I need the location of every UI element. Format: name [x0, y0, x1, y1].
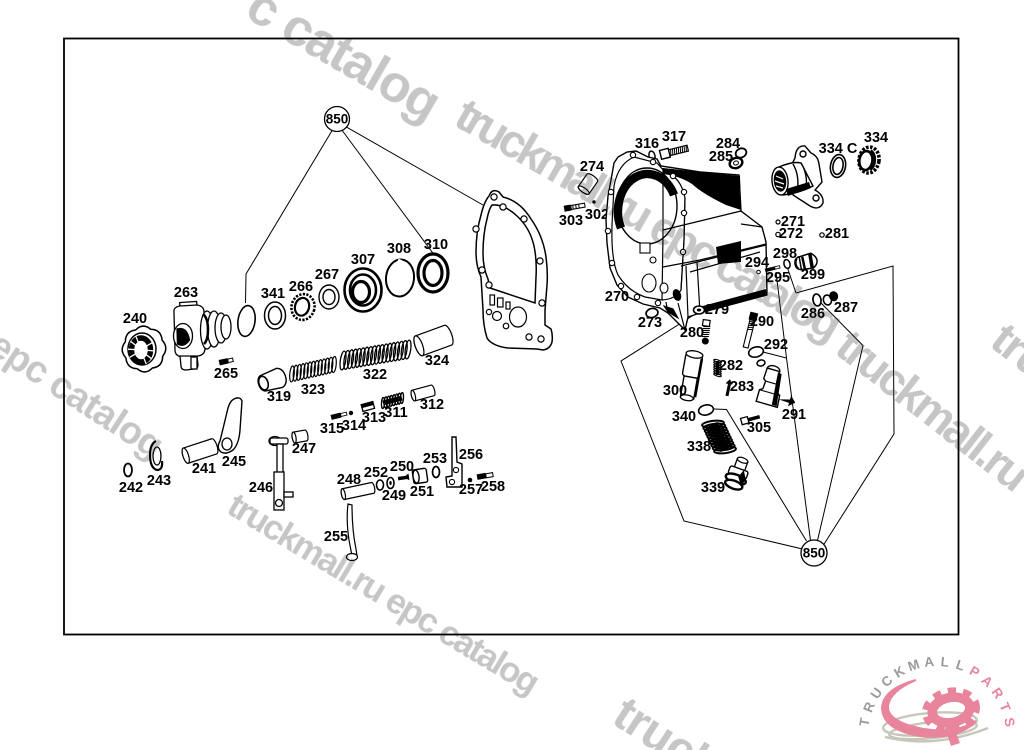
svg-text:850: 850 [803, 546, 826, 561]
svg-text:312: 312 [420, 397, 444, 413]
svg-text:251: 251 [410, 484, 434, 500]
svg-text:340: 340 [672, 409, 696, 425]
svg-text:315: 315 [320, 421, 344, 437]
svg-text:241: 241 [192, 461, 216, 477]
svg-text:308: 308 [387, 241, 411, 257]
svg-text:280: 280 [680, 325, 704, 341]
svg-text:257: 257 [459, 482, 483, 498]
svg-text:311: 311 [384, 405, 407, 421]
svg-text:258: 258 [481, 479, 505, 495]
svg-text:334 C: 334 C [819, 141, 858, 157]
svg-text:256: 256 [459, 447, 483, 463]
svg-text:338: 338 [687, 439, 711, 455]
svg-text:272: 272 [779, 226, 803, 242]
svg-text:314: 314 [342, 418, 366, 434]
svg-text:265: 265 [214, 366, 238, 382]
svg-text:850: 850 [326, 112, 349, 127]
svg-text:334: 334 [864, 130, 888, 146]
svg-text:250: 250 [390, 459, 414, 475]
svg-text:322: 322 [363, 367, 387, 383]
svg-text:305: 305 [747, 420, 771, 436]
svg-text:243: 243 [147, 473, 171, 489]
svg-text:303: 303 [559, 213, 583, 229]
svg-text:281: 281 [825, 226, 849, 242]
svg-text:267: 267 [315, 267, 339, 283]
svg-text:253: 253 [423, 451, 447, 467]
svg-text:273: 273 [638, 315, 662, 331]
svg-text:248: 248 [337, 472, 361, 488]
svg-text:245: 245 [222, 454, 246, 470]
svg-text:240: 240 [123, 311, 147, 327]
svg-text:242: 242 [119, 480, 143, 496]
svg-text:316: 316 [635, 136, 659, 152]
svg-text:292: 292 [764, 337, 788, 353]
svg-text:270: 270 [605, 289, 629, 305]
svg-text:300: 300 [663, 383, 687, 399]
svg-text:283: 283 [730, 379, 754, 395]
svg-text:252: 252 [364, 465, 388, 481]
svg-text:307: 307 [351, 252, 375, 268]
svg-text:279: 279 [705, 302, 729, 318]
svg-text:324: 324 [425, 353, 449, 369]
svg-text:323: 323 [301, 382, 325, 398]
svg-text:339: 339 [701, 480, 725, 496]
svg-text:319: 319 [267, 389, 291, 405]
svg-text:282: 282 [719, 358, 743, 374]
svg-text:247: 247 [292, 441, 316, 457]
svg-text:A: A [923, 654, 935, 670]
svg-text:317: 317 [662, 129, 686, 145]
svg-text:341: 341 [261, 286, 285, 302]
svg-text:266: 266 [289, 279, 313, 295]
svg-text:249: 249 [382, 488, 406, 504]
svg-text:291: 291 [782, 407, 806, 423]
svg-text:310: 310 [424, 237, 448, 253]
svg-text:298: 298 [773, 246, 797, 262]
svg-text:L: L [940, 654, 950, 670]
svg-text:263: 263 [174, 285, 198, 301]
svg-text:285: 285 [709, 149, 733, 165]
